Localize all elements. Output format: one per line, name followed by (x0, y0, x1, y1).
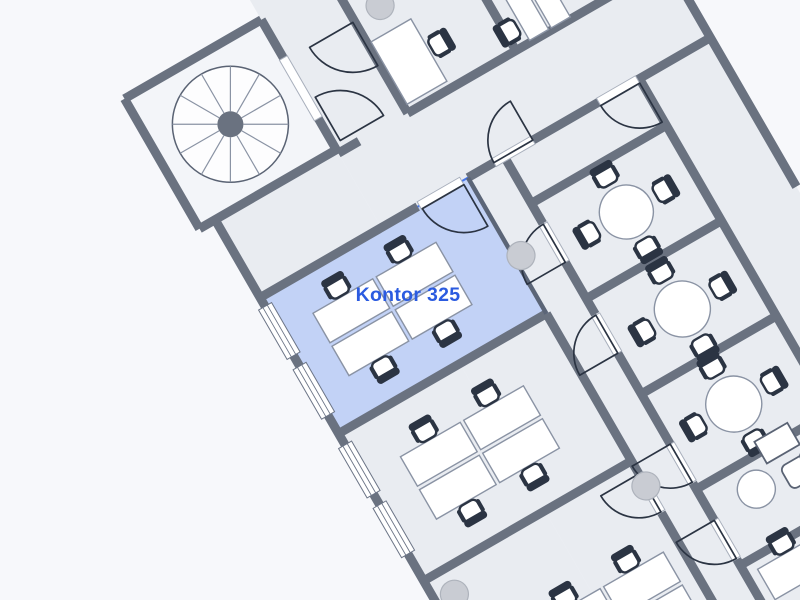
room-label-kontor-325: Kontor 325 (356, 284, 461, 306)
floor-plan-canvas: Kontor 325 (0, 0, 800, 600)
floor-plan-viewport: Kontor 325 (0, 0, 800, 600)
